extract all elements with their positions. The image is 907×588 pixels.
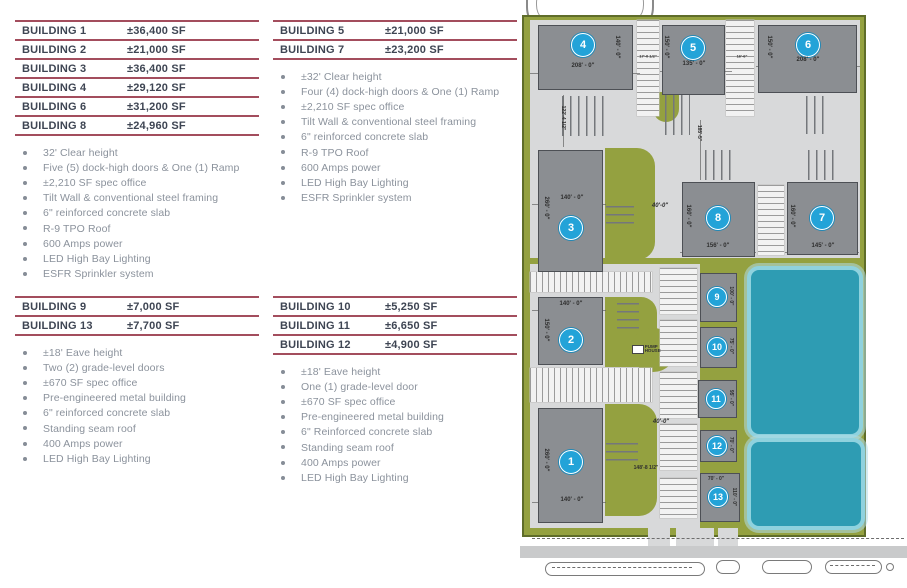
bullet-text: Pre-engineered metal building xyxy=(273,411,444,423)
building-11-number-badge: 11 xyxy=(706,389,726,409)
dock-stall-marks xyxy=(705,150,733,180)
spec-group-1: BUILDING 1±36,400 SFBUILDING 2±21,000 SF… xyxy=(15,20,259,282)
bullet-text: Standing seam roof xyxy=(273,442,394,454)
spec-bullet-item: 6" reinforced concrete slab xyxy=(15,406,259,421)
bullet-text: Four (4) dock-high doors & One (1) Ramp xyxy=(273,86,499,98)
spec-bullet-item: ±670 SF spec office xyxy=(273,394,517,409)
dimension-label: 140' - 0" xyxy=(560,301,583,307)
driveway xyxy=(676,528,714,546)
dimension-label: 140' - 0" xyxy=(561,195,584,201)
building-sf: ±7,700 SF xyxy=(127,320,179,332)
building-name: BUILDING 1 xyxy=(15,25,86,37)
bullet-text: One (1) grade-level door xyxy=(273,381,418,393)
spec-bullet-item: LED High Bay Lighting xyxy=(273,470,517,485)
parking-row xyxy=(660,372,697,418)
parking-row xyxy=(530,272,652,292)
building-table: BUILDING 5±21,000 SFBUILDING 7±23,200 SF xyxy=(273,20,517,60)
building-row: BUILDING 10±5,250 SF xyxy=(273,296,517,315)
building-sf: ±23,200 SF xyxy=(385,44,444,56)
building-name: BUILDING 13 xyxy=(15,320,93,332)
dimension-label: 160' - 0" xyxy=(789,205,795,228)
building-row: BUILDING 1±36,400 SF xyxy=(15,20,259,39)
road-curb xyxy=(716,560,740,574)
bullet-text: ±670 SF spec office xyxy=(273,396,395,408)
bullet-dot-icon xyxy=(281,370,285,374)
parking-row xyxy=(660,320,697,366)
dimension-label: 75' - 0" xyxy=(728,338,734,354)
spec-bullet-item: Standing seam roof xyxy=(15,421,259,436)
dimension-label: 122'-4 1/2" xyxy=(560,106,566,131)
building-1-number-badge: 1 xyxy=(559,450,583,474)
bullet-dot-icon xyxy=(23,351,27,355)
dock-stall-marks xyxy=(665,95,690,135)
bullet-dot-icon xyxy=(23,381,27,385)
spec-bullet-item: LED High Bay Lighting xyxy=(273,175,517,190)
dimension-label: 185'-5" xyxy=(696,125,702,141)
building-sf: ±24,960 SF xyxy=(127,120,186,132)
building-row: BUILDING 5±21,000 SF xyxy=(273,20,517,39)
bullet-text: Tilt Wall & conventional steel framing xyxy=(15,192,218,204)
bullet-dot-icon xyxy=(23,166,27,170)
bullet-dot-icon xyxy=(23,442,27,446)
spec-bullet-item: LED High Bay Lighting xyxy=(15,251,259,266)
bullet-dot-icon xyxy=(281,400,285,404)
bullet-text: LED High Bay Lighting xyxy=(273,177,409,189)
spec-bullet-item: ESFR Sprinkler system xyxy=(273,191,517,206)
pump-house: PUMP HOUSE xyxy=(632,344,666,354)
building-name: BUILDING 6 xyxy=(15,101,86,113)
site-plan: 45638721910111213208' - 0"140' - 0"135' … xyxy=(520,0,907,588)
building-12-number-badge: 12 xyxy=(707,436,727,456)
bullet-dot-icon xyxy=(23,151,27,155)
flyer-page: BUILDING 1±36,400 SFBUILDING 2±21,000 SF… xyxy=(0,0,907,588)
dimension-label: 156' - 0" xyxy=(707,243,730,249)
bullet-dot-icon xyxy=(281,461,285,465)
bullet-text: Standing seam roof xyxy=(15,423,136,435)
bullet-text: 400 Amps power xyxy=(273,457,381,469)
building-name: BUILDING 2 xyxy=(15,44,86,56)
dock-stall-marks xyxy=(562,96,608,136)
spec-bullet-item: Four (4) dock-high doors & One (1) Ramp xyxy=(273,84,517,99)
building-sf: ±36,400 SF xyxy=(127,25,186,37)
spec-bullet-item: ±2,210 SF spec office xyxy=(273,99,517,114)
bullet-text: ±2,210 SF spec office xyxy=(273,101,404,113)
building-4-number-badge: 4 xyxy=(571,33,595,57)
spec-bullet-item: Tilt Wall & conventional steel framing xyxy=(15,191,259,206)
building-sf: ±5,250 SF xyxy=(385,301,437,313)
building-name: BUILDING 12 xyxy=(273,339,351,351)
dimension-label: 16'-6" xyxy=(737,54,748,59)
bullet-text: ±32' Clear height xyxy=(273,71,382,83)
bullet-text: ESFR Sprinkler system xyxy=(273,192,412,204)
spec-bullets: ±32' Clear heightFour (4) dock-high door… xyxy=(273,69,517,206)
spec-bullet-item: Standing seam roof xyxy=(273,440,517,455)
spec-bullet-item: 400 Amps power xyxy=(273,455,517,470)
bullet-dot-icon xyxy=(23,257,27,261)
dimension-label: 70' - 0" xyxy=(708,476,724,482)
building-row: BUILDING 11±6,650 SF xyxy=(273,315,517,334)
bullet-text: 600 Amps power xyxy=(15,238,123,250)
spec-bullet-item: R-9 TPO Roof xyxy=(15,221,259,236)
spec-bullet-item: 32' Clear height xyxy=(15,145,259,160)
bullet-text: Pre-engineered metal building xyxy=(15,392,186,404)
bullet-dot-icon xyxy=(23,272,27,276)
spec-bullet-item: 600 Amps power xyxy=(273,160,517,175)
parking-row xyxy=(530,368,652,402)
bullet-dot-icon xyxy=(281,90,285,94)
spec-bullet-item: 400 Amps power xyxy=(15,436,259,451)
dimension-label: 150' - 0" xyxy=(663,36,669,59)
building-9-number-badge: 9 xyxy=(707,287,727,307)
road-curb xyxy=(762,560,812,574)
pump-house-label: PUMP HOUSE xyxy=(645,345,666,354)
bullet-dot-icon xyxy=(23,457,27,461)
bullet-text: 6" reinforced concrete slab xyxy=(15,207,170,219)
dimension-label: 148'-8 1/2" xyxy=(634,465,659,471)
parking-row xyxy=(660,268,697,314)
bullet-text: ±670 SF spec office xyxy=(15,377,137,389)
bullet-text: 32' Clear height xyxy=(15,147,118,159)
building-name: BUILDING 4 xyxy=(15,82,86,94)
bullet-text: ±2,210 SF spec office xyxy=(15,177,146,189)
building-name: BUILDING 9 xyxy=(15,301,86,313)
dimension-label: 40'-0" xyxy=(653,419,669,425)
spec-bullet-item: ±670 SF spec office xyxy=(15,375,259,390)
building-5-number-badge: 5 xyxy=(681,36,705,60)
bullet-text: Tilt Wall & conventional steel framing xyxy=(273,116,476,128)
building-row: BUILDING 13±7,700 SF xyxy=(15,315,259,336)
parking-row xyxy=(660,424,697,470)
building-sf: ±6,650 SF xyxy=(385,320,437,332)
road-marker-dot xyxy=(886,563,894,571)
parking-row xyxy=(637,20,659,116)
landscape-island xyxy=(605,148,655,260)
pump-house-icon xyxy=(632,345,644,354)
building-row: BUILDING 3±36,400 SF xyxy=(15,58,259,77)
dimension-label: 17'-0 1/2" xyxy=(639,54,657,59)
bullet-text: 6" reinforced concrete slab xyxy=(273,131,428,143)
dimension-label: 150' - 0" xyxy=(543,319,549,342)
spec-bullets: ±18' Eave heightTwo (2) grade-level door… xyxy=(15,345,259,467)
bullet-text: R-9 TPO Roof xyxy=(15,223,111,235)
dimension-label: 95' - 0" xyxy=(728,390,734,406)
building-sf: ±31,200 SF xyxy=(127,101,186,113)
spec-bullets: 32' Clear heightFive (5) dock-high doors… xyxy=(15,145,259,282)
bullet-text: LED High Bay Lighting xyxy=(15,253,151,265)
road-curb xyxy=(825,560,882,574)
spec-bullet-item: LED High Bay Lighting xyxy=(15,451,259,466)
bullet-text: ±18' Eave height xyxy=(15,347,122,359)
bullet-dot-icon xyxy=(281,181,285,185)
spec-bullets: ±18' Eave heightOne (1) grade-level door… xyxy=(273,364,517,486)
spec-bullet-item: 6" reinforced concrete slab xyxy=(273,130,517,145)
dimension-label: 160' - 0" xyxy=(685,205,691,228)
building-sf: ±7,000 SF xyxy=(127,301,179,313)
bullet-dot-icon xyxy=(281,196,285,200)
spec-bullet-item: ESFR Sprinkler system xyxy=(15,267,259,282)
building-table: BUILDING 9±7,000 SFBUILDING 13±7,700 SF xyxy=(15,296,259,336)
detention-pond xyxy=(747,266,863,438)
dock-stall-marks xyxy=(606,206,634,230)
dimension-label: 150' - 0" xyxy=(766,36,772,59)
building-table: BUILDING 10±5,250 SFBUILDING 11±6,650 SF… xyxy=(273,296,517,355)
dimension-label: 140' - 0" xyxy=(561,497,584,503)
dimension-label: 208' - 0" xyxy=(572,63,595,69)
bullet-text: 600 Amps power xyxy=(273,162,381,174)
bullet-text: ±18' Eave height xyxy=(273,366,380,378)
site-canvas: 45638721910111213208' - 0"140' - 0"135' … xyxy=(520,0,907,588)
dock-stall-marks xyxy=(617,303,639,331)
building-name: BUILDING 8 xyxy=(15,120,86,132)
bullet-text: LED High Bay Lighting xyxy=(15,453,151,465)
dimension-label: 208' - 0" xyxy=(797,57,820,63)
spec-bullet-item: ±32' Clear height xyxy=(273,69,517,84)
spec-bullet-item: Tilt Wall & conventional steel framing xyxy=(273,115,517,130)
building-row: BUILDING 6±31,200 SF xyxy=(15,96,259,115)
road-curb xyxy=(545,562,705,576)
dimension-label: 145' - 0" xyxy=(812,243,835,249)
building-row: BUILDING 12±4,900 SF xyxy=(273,334,517,355)
spec-bullet-item: ±18' Eave height xyxy=(15,345,259,360)
building-row: BUILDING 4±29,120 SF xyxy=(15,77,259,96)
bullet-text: Two (2) grade-level doors xyxy=(15,362,165,374)
bullet-text: LED High Bay Lighting xyxy=(273,472,409,484)
building-7-number-badge: 7 xyxy=(810,206,834,230)
detention-pond xyxy=(747,438,865,530)
building-sf: ±29,120 SF xyxy=(127,82,186,94)
parking-row xyxy=(726,20,754,116)
spec-group-2: BUILDING 5±21,000 SFBUILDING 7±23,200 SF… xyxy=(273,20,517,206)
building-table: BUILDING 1±36,400 SFBUILDING 2±21,000 SF… xyxy=(15,20,259,136)
building-6-number-badge: 6 xyxy=(796,33,820,57)
dimension-label: 260' - 0" xyxy=(543,449,549,472)
building-sf: ±36,400 SF xyxy=(127,63,186,75)
spec-bullet-item: Pre-engineered metal building xyxy=(273,410,517,425)
dimension-label: 70' - 0" xyxy=(728,437,734,453)
building-8-number-badge: 8 xyxy=(706,206,730,230)
building-specs-panel: BUILDING 1±36,400 SFBUILDING 2±21,000 SF… xyxy=(0,0,520,588)
spec-bullet-item: Two (2) grade-level doors xyxy=(15,360,259,375)
dimension-label: 135' - 0" xyxy=(683,61,706,67)
bullet-dot-icon xyxy=(281,166,285,170)
dimension-label: 260' - 0" xyxy=(543,197,549,220)
road-pavement xyxy=(520,546,907,558)
building-sf: ±21,000 SF xyxy=(385,25,444,37)
building-row: BUILDING 9±7,000 SF xyxy=(15,296,259,315)
building-sf: ±4,900 SF xyxy=(385,339,437,351)
dimension-label: 140' - 0" xyxy=(614,36,620,59)
bullet-dot-icon xyxy=(281,385,285,389)
parking-row xyxy=(660,478,697,518)
bullet-text: 6" reinforced concrete slab xyxy=(15,407,170,419)
bullet-dot-icon xyxy=(281,476,285,480)
dimension-label: 110' - 0" xyxy=(731,488,737,507)
dimension-label: 40'-0" xyxy=(652,203,668,209)
bullet-text: 6" Reinforced concrete slab xyxy=(273,426,432,438)
spec-bullet-item: Five (5) dock-high doors & One (1) Ramp xyxy=(15,160,259,175)
spec-bullet-item: R-9 TPO Roof xyxy=(273,145,517,160)
parking-row xyxy=(758,185,784,255)
dimension-label: 100' - 0" xyxy=(728,286,734,305)
bullet-text: R-9 TPO Roof xyxy=(273,147,369,159)
bullet-dot-icon xyxy=(281,105,285,109)
bullet-text: ESFR Sprinkler system xyxy=(15,268,154,280)
spec-bullet-item: ±2,210 SF spec office xyxy=(15,175,259,190)
bullet-dot-icon xyxy=(23,366,27,370)
bullet-dot-icon xyxy=(281,75,285,79)
dock-stall-marks xyxy=(806,96,830,134)
road-median-line xyxy=(552,567,692,568)
building-name: BUILDING 3 xyxy=(15,63,86,75)
spec-bullet-item: One (1) grade-level door xyxy=(273,379,517,394)
bullet-text: 400 Amps power xyxy=(15,438,123,450)
bullet-text: Five (5) dock-high doors & One (1) Ramp xyxy=(15,162,239,174)
spec-bullet-item: 6" Reinforced concrete slab xyxy=(273,425,517,440)
dock-stall-marks xyxy=(606,443,638,467)
driveway xyxy=(718,528,738,546)
spec-group-4: BUILDING 10±5,250 SFBUILDING 11±6,650 SF… xyxy=(273,296,517,486)
road-centerline xyxy=(532,538,904,539)
spec-bullet-item: 6" reinforced concrete slab xyxy=(15,206,259,221)
building-name: BUILDING 11 xyxy=(273,320,350,332)
building-sf: ±21,000 SF xyxy=(127,44,186,56)
building-3-number-badge: 3 xyxy=(559,216,583,240)
building-2-number-badge: 2 xyxy=(559,328,583,352)
spec-bullet-item: 600 Amps power xyxy=(15,236,259,251)
driveway xyxy=(648,528,670,546)
bullet-dot-icon xyxy=(23,181,27,185)
building-row: BUILDING 7±23,200 SF xyxy=(273,39,517,60)
building-row: BUILDING 8±24,960 SF xyxy=(15,115,259,136)
dock-stall-marks xyxy=(808,150,836,180)
spec-bullet-item: ±18' Eave height xyxy=(273,364,517,379)
spec-group-3: BUILDING 9±7,000 SFBUILDING 13±7,700 SF±… xyxy=(15,296,259,467)
building-name: BUILDING 5 xyxy=(273,25,344,37)
building-10-number-badge: 10 xyxy=(707,337,727,357)
building-row: BUILDING 2±21,000 SF xyxy=(15,39,259,58)
spec-bullet-item: Pre-engineered metal building xyxy=(15,391,259,406)
building-name: BUILDING 10 xyxy=(273,301,351,313)
bullet-dot-icon xyxy=(23,242,27,246)
road-median-line xyxy=(830,565,875,566)
building-13-number-badge: 13 xyxy=(708,487,728,507)
building-name: BUILDING 7 xyxy=(273,44,344,56)
